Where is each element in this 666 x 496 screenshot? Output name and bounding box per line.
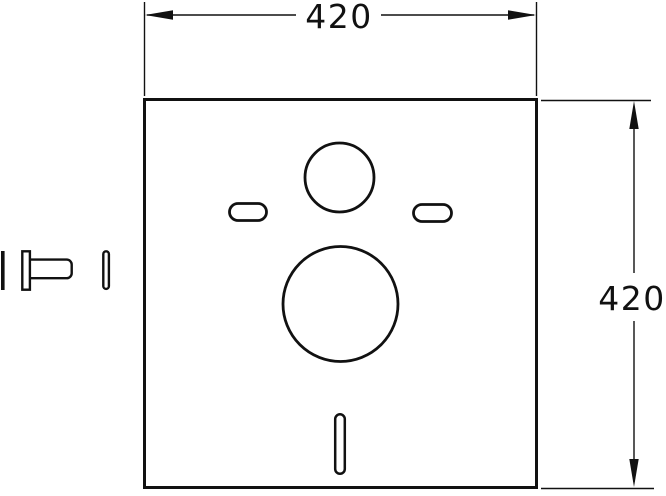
height-dim-arrow-down [629, 459, 638, 487]
spacer-bar-profile [1, 251, 5, 290]
left-slot-hole [230, 204, 267, 221]
sleeve-body [29, 260, 72, 279]
height-dim-arrow-up [629, 101, 638, 129]
height-dimension-label: 420 [598, 279, 666, 318]
width-dim-arrow-right [508, 10, 536, 19]
right-slot-hole [414, 205, 452, 222]
sleeve-flange [22, 251, 30, 289]
width-dimension-label: 420 [305, 0, 373, 36]
top-circle-hole [305, 143, 374, 212]
bottom-slot-hole [335, 414, 345, 474]
technical-drawing: 420 420 [0, 0, 666, 496]
washer-profile [103, 251, 109, 289]
large-circle-hole [283, 247, 398, 362]
width-dim-arrow-left [145, 10, 173, 19]
